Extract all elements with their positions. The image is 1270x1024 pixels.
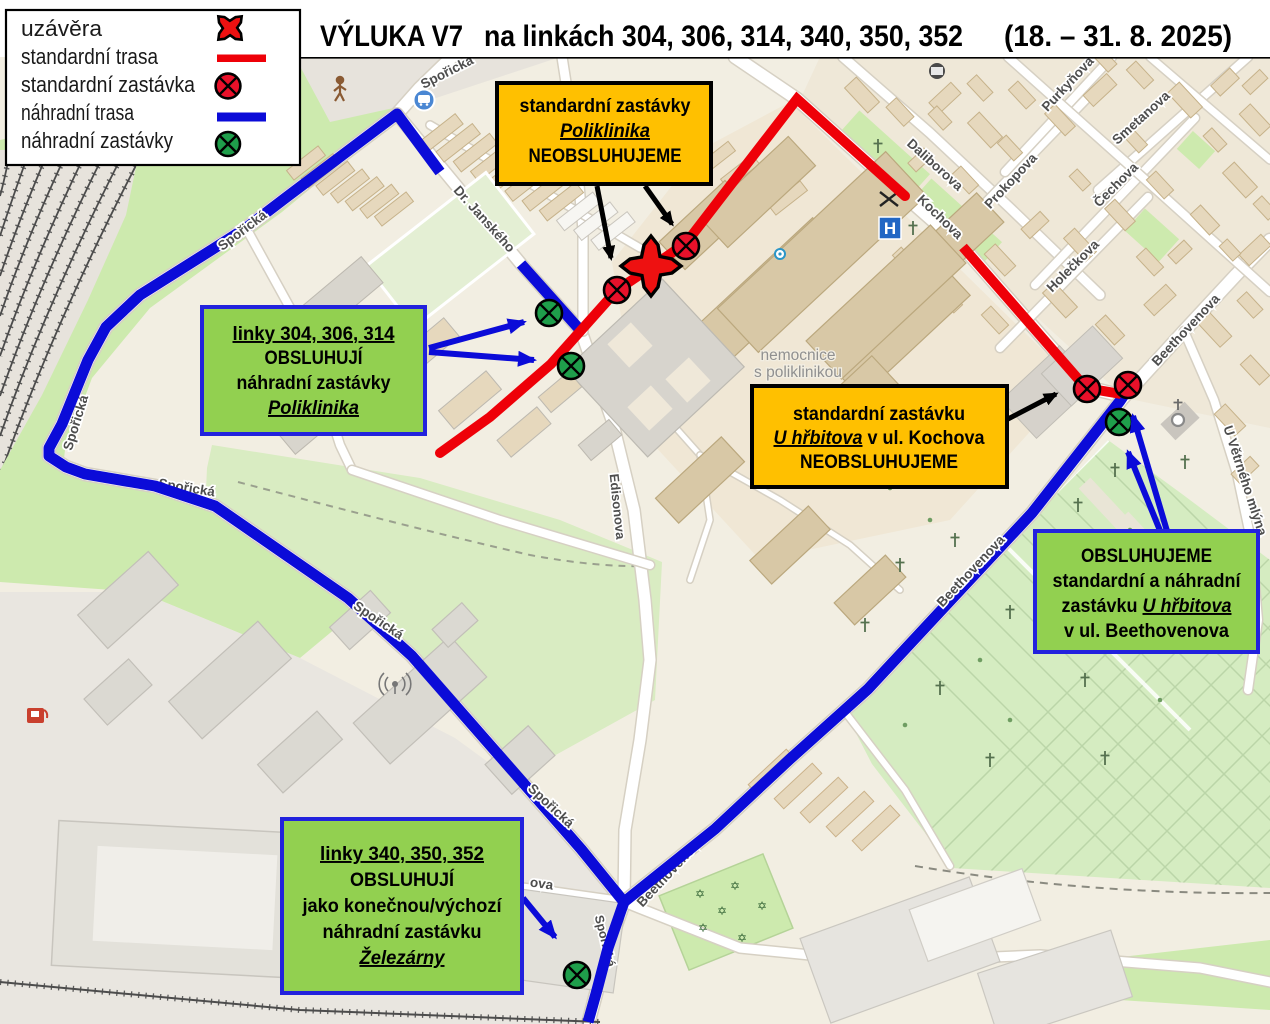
svg-text:✡: ✡ (695, 887, 705, 901)
svg-text:Železárny: Železárny (359, 945, 446, 969)
svg-text:standardní zastávku: standardní zastávku (793, 403, 965, 425)
svg-text:linky 340, 350, 352: linky 340, 350, 352 (320, 843, 484, 865)
svg-text:linky 304, 306, 314: linky 304, 306, 314 (233, 323, 395, 345)
svg-text:standardní zastávka: standardní zastávka (21, 72, 195, 97)
svg-text:VÝLUKA V7: VÝLUKA V7 (320, 19, 463, 53)
svg-text:OBSLUHUJÍ: OBSLUHUJÍ (350, 868, 455, 891)
svg-text:na linkách 304, 306, 314, 340,: na linkách 304, 306, 314, 340, 350, 352 (484, 20, 963, 53)
svg-text:✡: ✡ (757, 899, 767, 913)
svg-text:standardní trasa: standardní trasa (21, 44, 158, 69)
svg-text:náhradní zastávku: náhradní zastávku (323, 921, 482, 943)
svg-text:náhradní trasa: náhradní trasa (21, 100, 134, 125)
svg-text:náhradní zastávky: náhradní zastávky (237, 372, 391, 394)
svg-text:NEOBSLUHUJEME: NEOBSLUHUJEME (529, 145, 682, 167)
svg-text:s poliklinikou: s poliklinikou (754, 364, 842, 381)
svg-text:jako konečnou/výchozí: jako konečnou/výchozí (302, 895, 502, 917)
svg-text:✡: ✡ (737, 931, 747, 945)
svg-text:standardní a náhradní: standardní a náhradní (1053, 570, 1242, 592)
svg-text:uzávěra: uzávěra (21, 16, 102, 41)
svg-text:U hřbitova v ul. Kochova: U hřbitova v ul. Kochova (774, 427, 985, 449)
svg-text:standardní zastávky: standardní zastávky (520, 95, 691, 117)
svg-text:✡: ✡ (730, 879, 740, 893)
svg-text:nemocnice: nemocnice (761, 347, 836, 364)
svg-text:náhradní zastávky: náhradní zastávky (21, 128, 174, 153)
svg-text:zastávku U hřbitova: zastávku U hřbitova (1062, 595, 1232, 617)
svg-text:OBSLUHUJÍ: OBSLUHUJÍ (265, 346, 363, 369)
svg-text:NEOBSLUHUJEME: NEOBSLUHUJEME (800, 451, 958, 473)
svg-text:Poliklinika: Poliklinika (560, 120, 650, 142)
svg-text:(18. – 31. 8. 2025): (18. – 31. 8. 2025) (1004, 20, 1232, 53)
svg-text:Poliklinika: Poliklinika (268, 397, 359, 419)
svg-text:OBSLUHUJEME: OBSLUHUJEME (1081, 545, 1212, 567)
svg-text:✡: ✡ (717, 904, 727, 918)
svg-text:✡: ✡ (698, 921, 708, 935)
svg-text:v ul. Beethovenova: v ul. Beethovenova (1064, 620, 1229, 642)
svg-text:H: H (884, 219, 896, 238)
